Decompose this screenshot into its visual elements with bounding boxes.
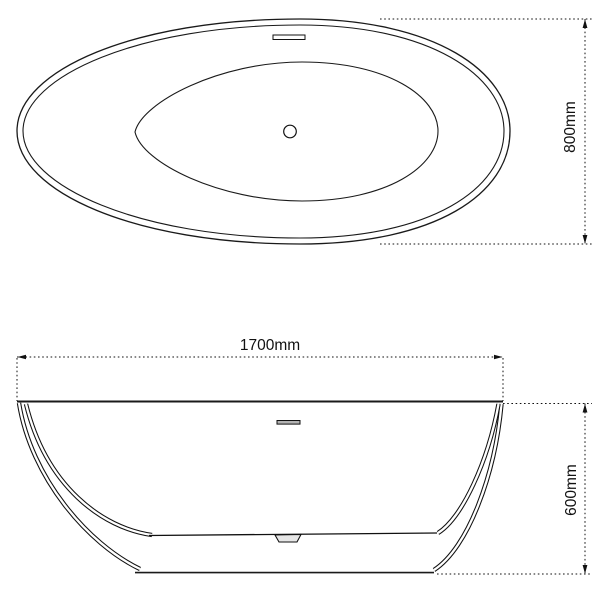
- bathtub-technical-drawing: 800mm 1700mm: [0, 0, 606, 595]
- side-view-height-dimension: 600mm: [437, 404, 592, 575]
- arrowhead-up-icon: [583, 404, 588, 413]
- top-view-width-dimension: 800mm: [380, 19, 592, 244]
- arrowhead-right-icon: [494, 355, 503, 360]
- arrowhead-left-icon: [17, 355, 26, 360]
- arrowhead-up-icon: [583, 19, 588, 28]
- top-view-width-label: 800mm: [562, 101, 579, 153]
- side-view-shell: [19, 403, 502, 570]
- side-view-height-label: 600mm: [563, 464, 580, 516]
- arrowhead-down-icon: [583, 565, 588, 574]
- side-view: 1700mm: [17, 337, 592, 574]
- top-view: 800mm: [17, 19, 592, 244]
- arrowhead-down-icon: [583, 235, 588, 244]
- left-inner-wall-inner-gap: [26, 404, 152, 535]
- left-inner-wall: [26, 404, 152, 535]
- top-view-inner-rim-line: [23, 25, 504, 238]
- top-view-overflow-slot: [273, 35, 305, 40]
- side-view-length-dimension: 1700mm: [17, 337, 503, 401]
- top-view-outer-rim-line: [17, 19, 510, 244]
- top-view-drain: [284, 125, 297, 138]
- drain-recess: [275, 535, 301, 543]
- side-view-overflow-slot: [277, 421, 300, 425]
- left-outer-wall-inner-gap: [19, 403, 140, 569]
- drawing-canvas: 800mm 1700mm: [0, 0, 606, 595]
- side-view-length-label: 1700mm: [240, 337, 300, 354]
- left-outer-wall: [19, 403, 140, 569]
